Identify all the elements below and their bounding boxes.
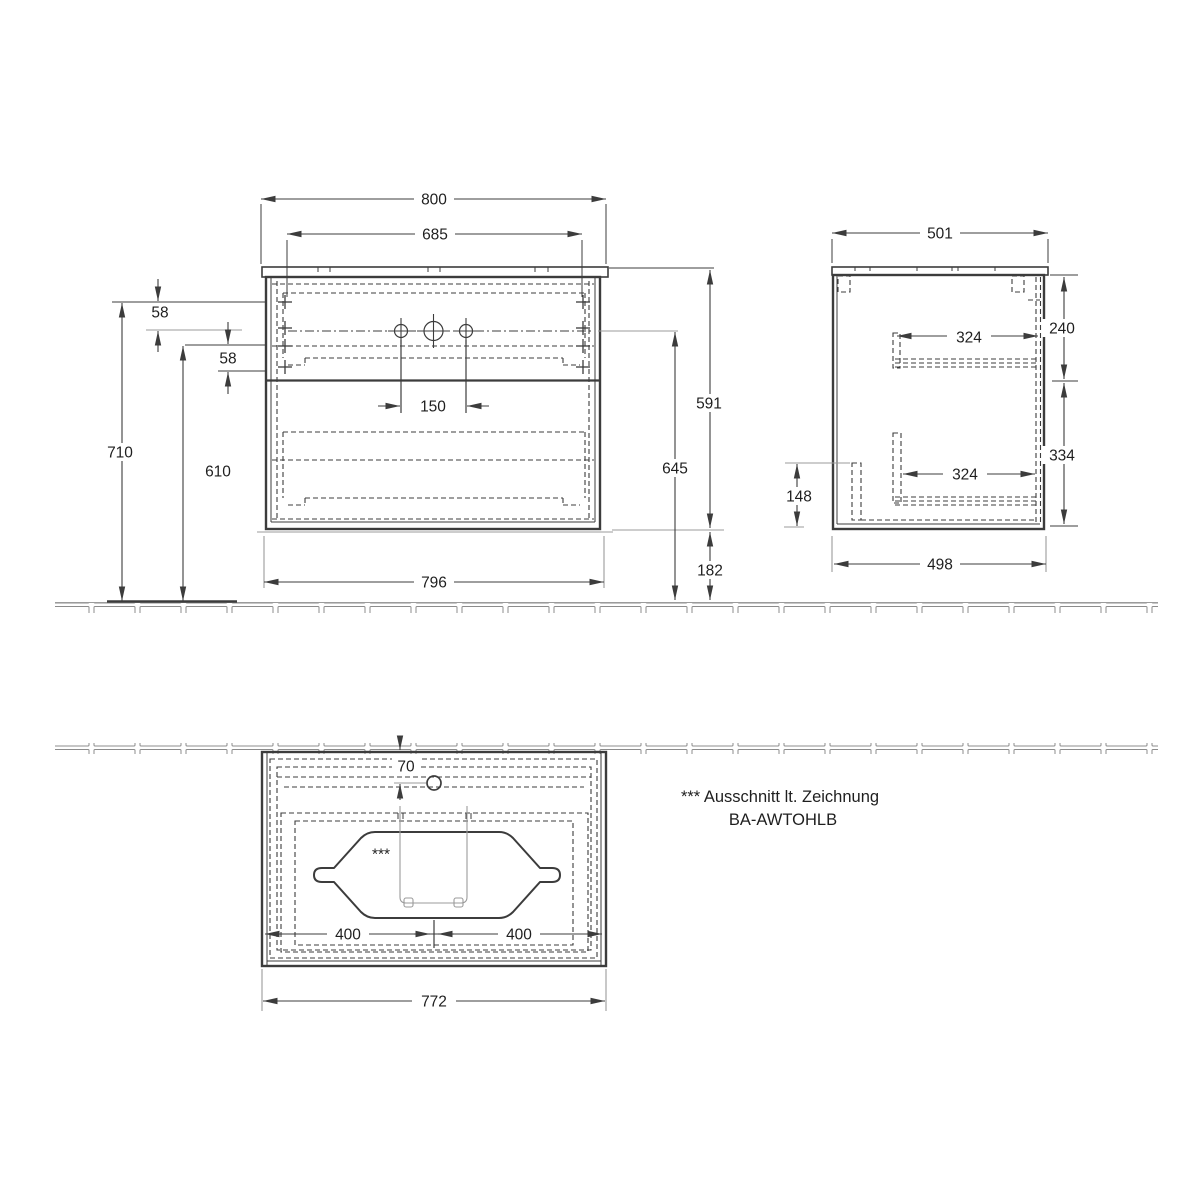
side-cabinet-outline: [833, 275, 1044, 529]
dim-front-width-bottom: 796: [421, 575, 447, 592]
vanity-dimension-drawing: 800 685 58 58 710 610 150 591 645 182 79…: [0, 0, 1200, 1200]
dim-front-faucet-height: 645: [662, 461, 688, 478]
dim-plan-cut-right: 400: [506, 927, 532, 944]
dim-side-front-lower: 334: [1049, 448, 1075, 465]
dim-front-width-inner: 685: [422, 227, 448, 244]
floor-tile-strip: [55, 602, 1158, 613]
plan-basin-cutout: [314, 806, 560, 918]
floor-tiles-upper: [55, 602, 1158, 614]
dim-side-drawer-upper: 324: [956, 330, 982, 347]
dim-side-drawer-lower: 324: [952, 467, 978, 484]
dim-front-clearance: 182: [697, 563, 723, 580]
note-line-2: BA-AWTOHLB: [729, 811, 837, 829]
dim-front-hole-spacing: 150: [420, 399, 446, 416]
dim-plan-width: 772: [421, 994, 447, 1011]
dim-front-offset-bottom: 58: [219, 351, 236, 368]
basin-cutout-outline: [314, 832, 560, 918]
dim-front-width-top: 800: [421, 192, 447, 209]
dim-side-rail-height: 148: [786, 489, 812, 506]
cutout-note: *** Ausschnitt lt. Zeichnung BA-AWTOHLB: [681, 788, 879, 829]
dim-plan-cut-left: 400: [335, 927, 361, 944]
side-dimensions: 501 324 240 324 334 148 498: [779, 224, 1082, 574]
side-cabinet-body: [833, 275, 1044, 529]
plan-basin-leg-marks: [398, 813, 471, 819]
dim-side-front-upper: 240: [1049, 321, 1075, 338]
dim-side-depth-top: 501: [927, 226, 953, 243]
front-view: 800 685 58 58 710 610 150 591 645 182 79…: [100, 190, 730, 601]
dim-front-body-height: 591: [696, 396, 722, 413]
side-wall-bracket-right: [1012, 276, 1024, 292]
front-countertop: [262, 267, 608, 277]
dim-front-height-total: 710: [107, 445, 133, 462]
plan-hole: [394, 776, 441, 790]
technical-drawing-page: 800 685 58 58 710 610 150 591 645 182 79…: [0, 0, 1200, 1200]
side-countertop: [832, 267, 1048, 275]
dim-plan-hole-offset: 70: [397, 759, 415, 776]
dim-side-depth-bottom: 498: [927, 557, 953, 574]
front-lower-drawer-dashed: [283, 432, 585, 505]
drain-hole-icon: [427, 776, 441, 790]
front-dimensions: 800 685 58 58 710 610 150 591 645 182 79…: [100, 190, 730, 601]
side-wall-rail-bracket: [852, 463, 861, 520]
dim-front-offset-top: 58: [151, 305, 168, 322]
plan-view: 70 *** 400 400 772: [55, 737, 1158, 1011]
side-wall-bracket-left: [838, 276, 850, 292]
side-lower-drawer-bracket: [893, 433, 901, 503]
dim-front-height-rail: 610: [205, 464, 231, 481]
plan-cutout-marker: ***: [372, 847, 390, 864]
note-line-1: *** Ausschnitt lt. Zeichnung: [681, 788, 879, 806]
side-interior-dashed: [838, 276, 1040, 520]
side-view: 501 324 240 324 334 148 498: [779, 224, 1082, 574]
